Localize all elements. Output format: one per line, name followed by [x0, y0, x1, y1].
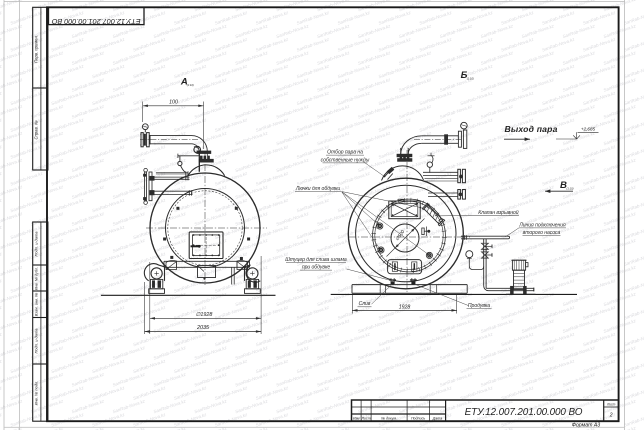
svg-text:ЕТУ.12.007.201.00.000 ВО: ЕТУ.12.007.201.00.000 ВО — [465, 407, 583, 418]
svg-text:Лючки для обдувки: Лючки для обдувки — [295, 186, 341, 192]
svg-text:собственные нужды: собственные нужды — [321, 157, 370, 163]
svg-text:1928: 1928 — [399, 304, 411, 310]
svg-text:ЕТУ.12.007.201.00.000 ВО: ЕТУ.12.007.201.00.000 ВО — [52, 17, 141, 26]
svg-text:Слив: Слив — [359, 301, 371, 307]
svg-text:Отбор пара на: Отбор пара на — [327, 150, 363, 156]
svg-text:Лист: Лист — [360, 416, 370, 420]
svg-text:Инв. № подл.: Инв. № подл. — [34, 381, 39, 406]
svg-text:Штуцер для слива шлама: Штуцер для слива шлама — [285, 257, 347, 263]
svg-text:2: 2 — [609, 413, 613, 419]
svg-text:Подп. и дата: Подп. и дата — [34, 328, 39, 354]
svg-text:второго насоса: второго насоса — [523, 230, 561, 236]
svg-text:100: 100 — [169, 100, 178, 106]
svg-text:Формат А3: Формат А3 — [572, 423, 600, 429]
svg-text:+2,685: +2,685 — [581, 127, 596, 132]
svg-text:2035: 2035 — [196, 325, 210, 331]
svg-text:Перв. примен.: Перв. примен. — [34, 35, 39, 63]
svg-text:Взам. инв. №: Взам. инв. № — [35, 293, 39, 316]
svg-text:Справ. №: Справ. № — [34, 120, 39, 139]
svg-text:Лист: Лист — [606, 402, 616, 406]
svg-text:Дата: Дата — [432, 416, 442, 420]
svg-text:(1:10): (1:10) — [566, 187, 573, 191]
svg-text:№ докум.: № докум. — [381, 416, 397, 420]
svg-text:Линия подключения: Линия подключения — [518, 222, 566, 228]
svg-text:при обдувке: при обдувке — [302, 265, 331, 271]
svg-text:(1:10): (1:10) — [467, 77, 474, 81]
svg-text:∅1928: ∅1928 — [196, 312, 213, 318]
svg-text:Изм: Изм — [353, 416, 360, 420]
svg-text:Клапан взрывной: Клапан взрывной — [478, 209, 519, 216]
svg-text:Выход пара: Выход пара — [504, 124, 557, 134]
svg-text:Инв. № дубл.: Инв. № дубл. — [35, 267, 39, 290]
svg-text:Подп. и дата: Подп. и дата — [34, 231, 39, 257]
svg-text:Продувка: Продувка — [468, 303, 490, 309]
svg-text:Подпись: Подпись — [411, 416, 425, 420]
svg-text:(1:10): (1:10) — [187, 83, 194, 87]
